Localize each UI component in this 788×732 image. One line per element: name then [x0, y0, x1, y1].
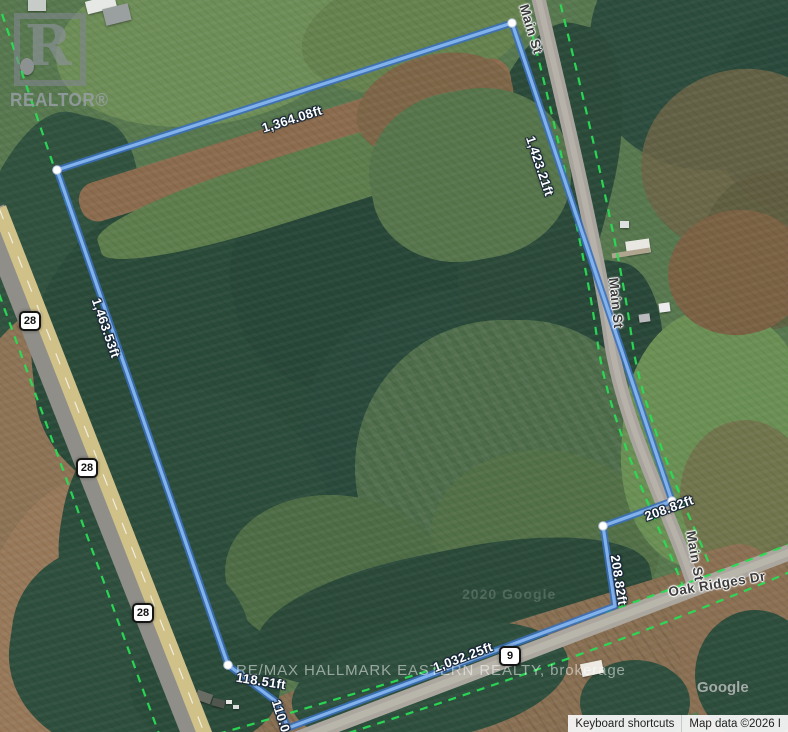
map-data-copyright: Map data ©2026 I — [682, 718, 788, 730]
google-logo-watermark: Google — [697, 679, 749, 696]
route-28-shield: 28 — [132, 603, 154, 623]
imagery-ghost-watermark: 2020 Google — [462, 586, 556, 602]
realtor-logo-frame: R — [14, 13, 86, 86]
parcel-vertex — [53, 166, 62, 175]
road-highway-28 — [0, 208, 207, 732]
parcel-vertex — [224, 661, 233, 670]
parcel-vertex — [508, 19, 517, 28]
satellite-map-canvas[interactable]: 2020 Google RE/MAX HALLMARK EASTERN REAL… — [0, 0, 788, 732]
lot-line — [557, 0, 710, 566]
keyboard-shortcuts-link[interactable]: Keyboard shortcuts — [568, 718, 681, 730]
route-28-shield: 28 — [19, 311, 41, 331]
lot-line — [0, 280, 162, 732]
realtor-watermark: R REALTOR® — [10, 10, 120, 111]
realtor-label: REALTOR® — [10, 90, 116, 111]
parcel-vertex — [599, 522, 608, 531]
map-attribution-bar: Keyboard shortcuts Map data ©2026 I — [568, 715, 788, 732]
brokerage-watermark: RE/MAX HALLMARK EASTERN REALTY, brokerag… — [236, 662, 626, 679]
route-9-shield: 9 — [499, 646, 521, 666]
realtor-logo-r: R — [25, 13, 72, 79]
route-28-shield: 28 — [76, 458, 98, 478]
